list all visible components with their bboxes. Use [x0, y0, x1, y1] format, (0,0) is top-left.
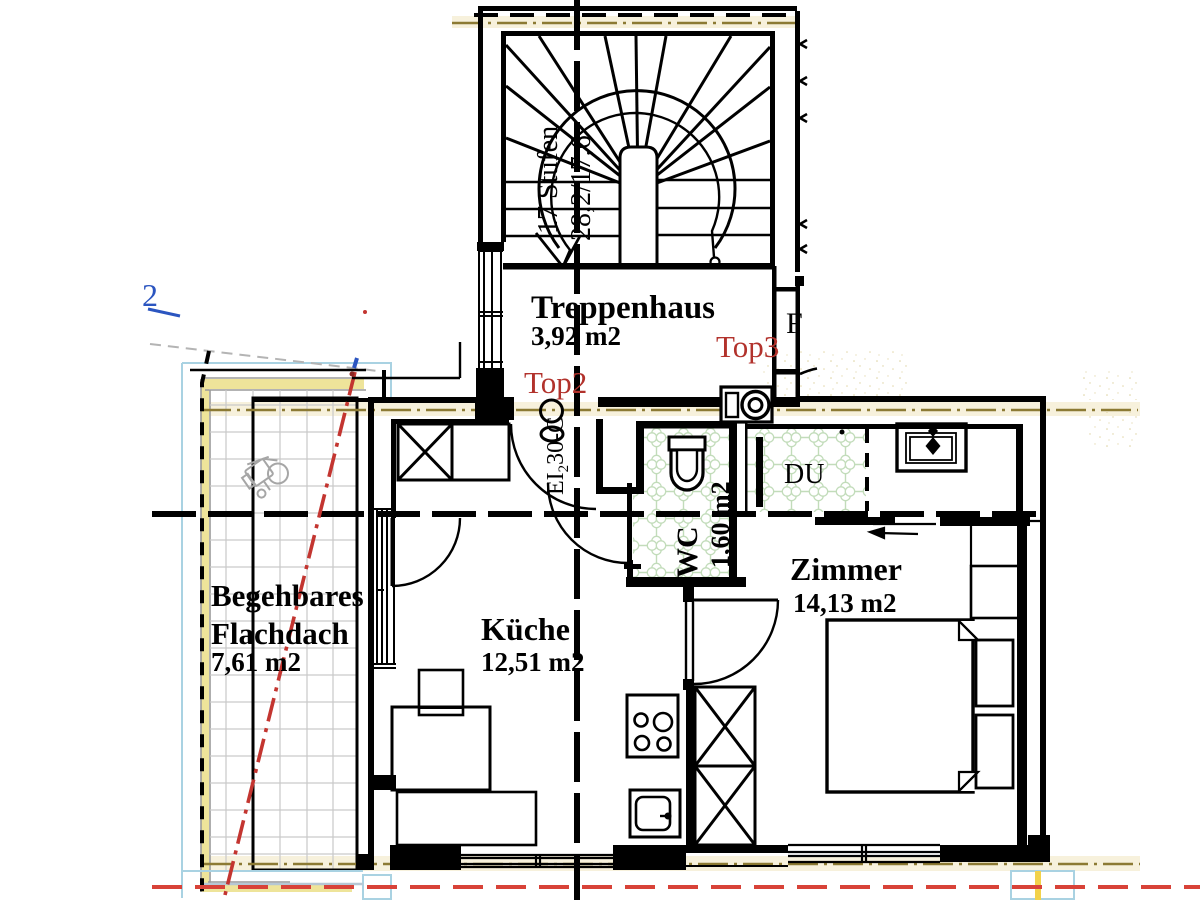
svg-text:7,61 m2: 7,61 m2	[211, 647, 301, 677]
svg-text:WC: WC	[671, 526, 704, 578]
svg-text:1,60 m2: 1,60 m2	[706, 481, 735, 568]
svg-text:Flachdach: Flachdach	[211, 616, 349, 651]
svg-text:F: F	[786, 307, 803, 340]
svg-text:Zimmer: Zimmer	[790, 551, 902, 587]
svg-text:EI230-C: EI230-C	[543, 417, 572, 495]
svg-text:17 Stufen: 17 Stufen	[533, 126, 564, 234]
svg-text:3,92 m2: 3,92 m2	[531, 321, 621, 351]
svg-text:2: 2	[142, 277, 158, 313]
svg-text:Begehbares: Begehbares	[211, 578, 364, 613]
svg-text:28,2/17,6: 28,2/17,6	[566, 135, 597, 241]
svg-text:Top3: Top3	[716, 329, 779, 364]
svg-text:DU: DU	[784, 459, 824, 490]
svg-text:Top2: Top2	[524, 365, 587, 400]
svg-text:Küche: Küche	[481, 611, 570, 647]
svg-text:12,51 m2: 12,51 m2	[481, 647, 585, 677]
svg-text:14,13 m2: 14,13 m2	[793, 588, 897, 618]
